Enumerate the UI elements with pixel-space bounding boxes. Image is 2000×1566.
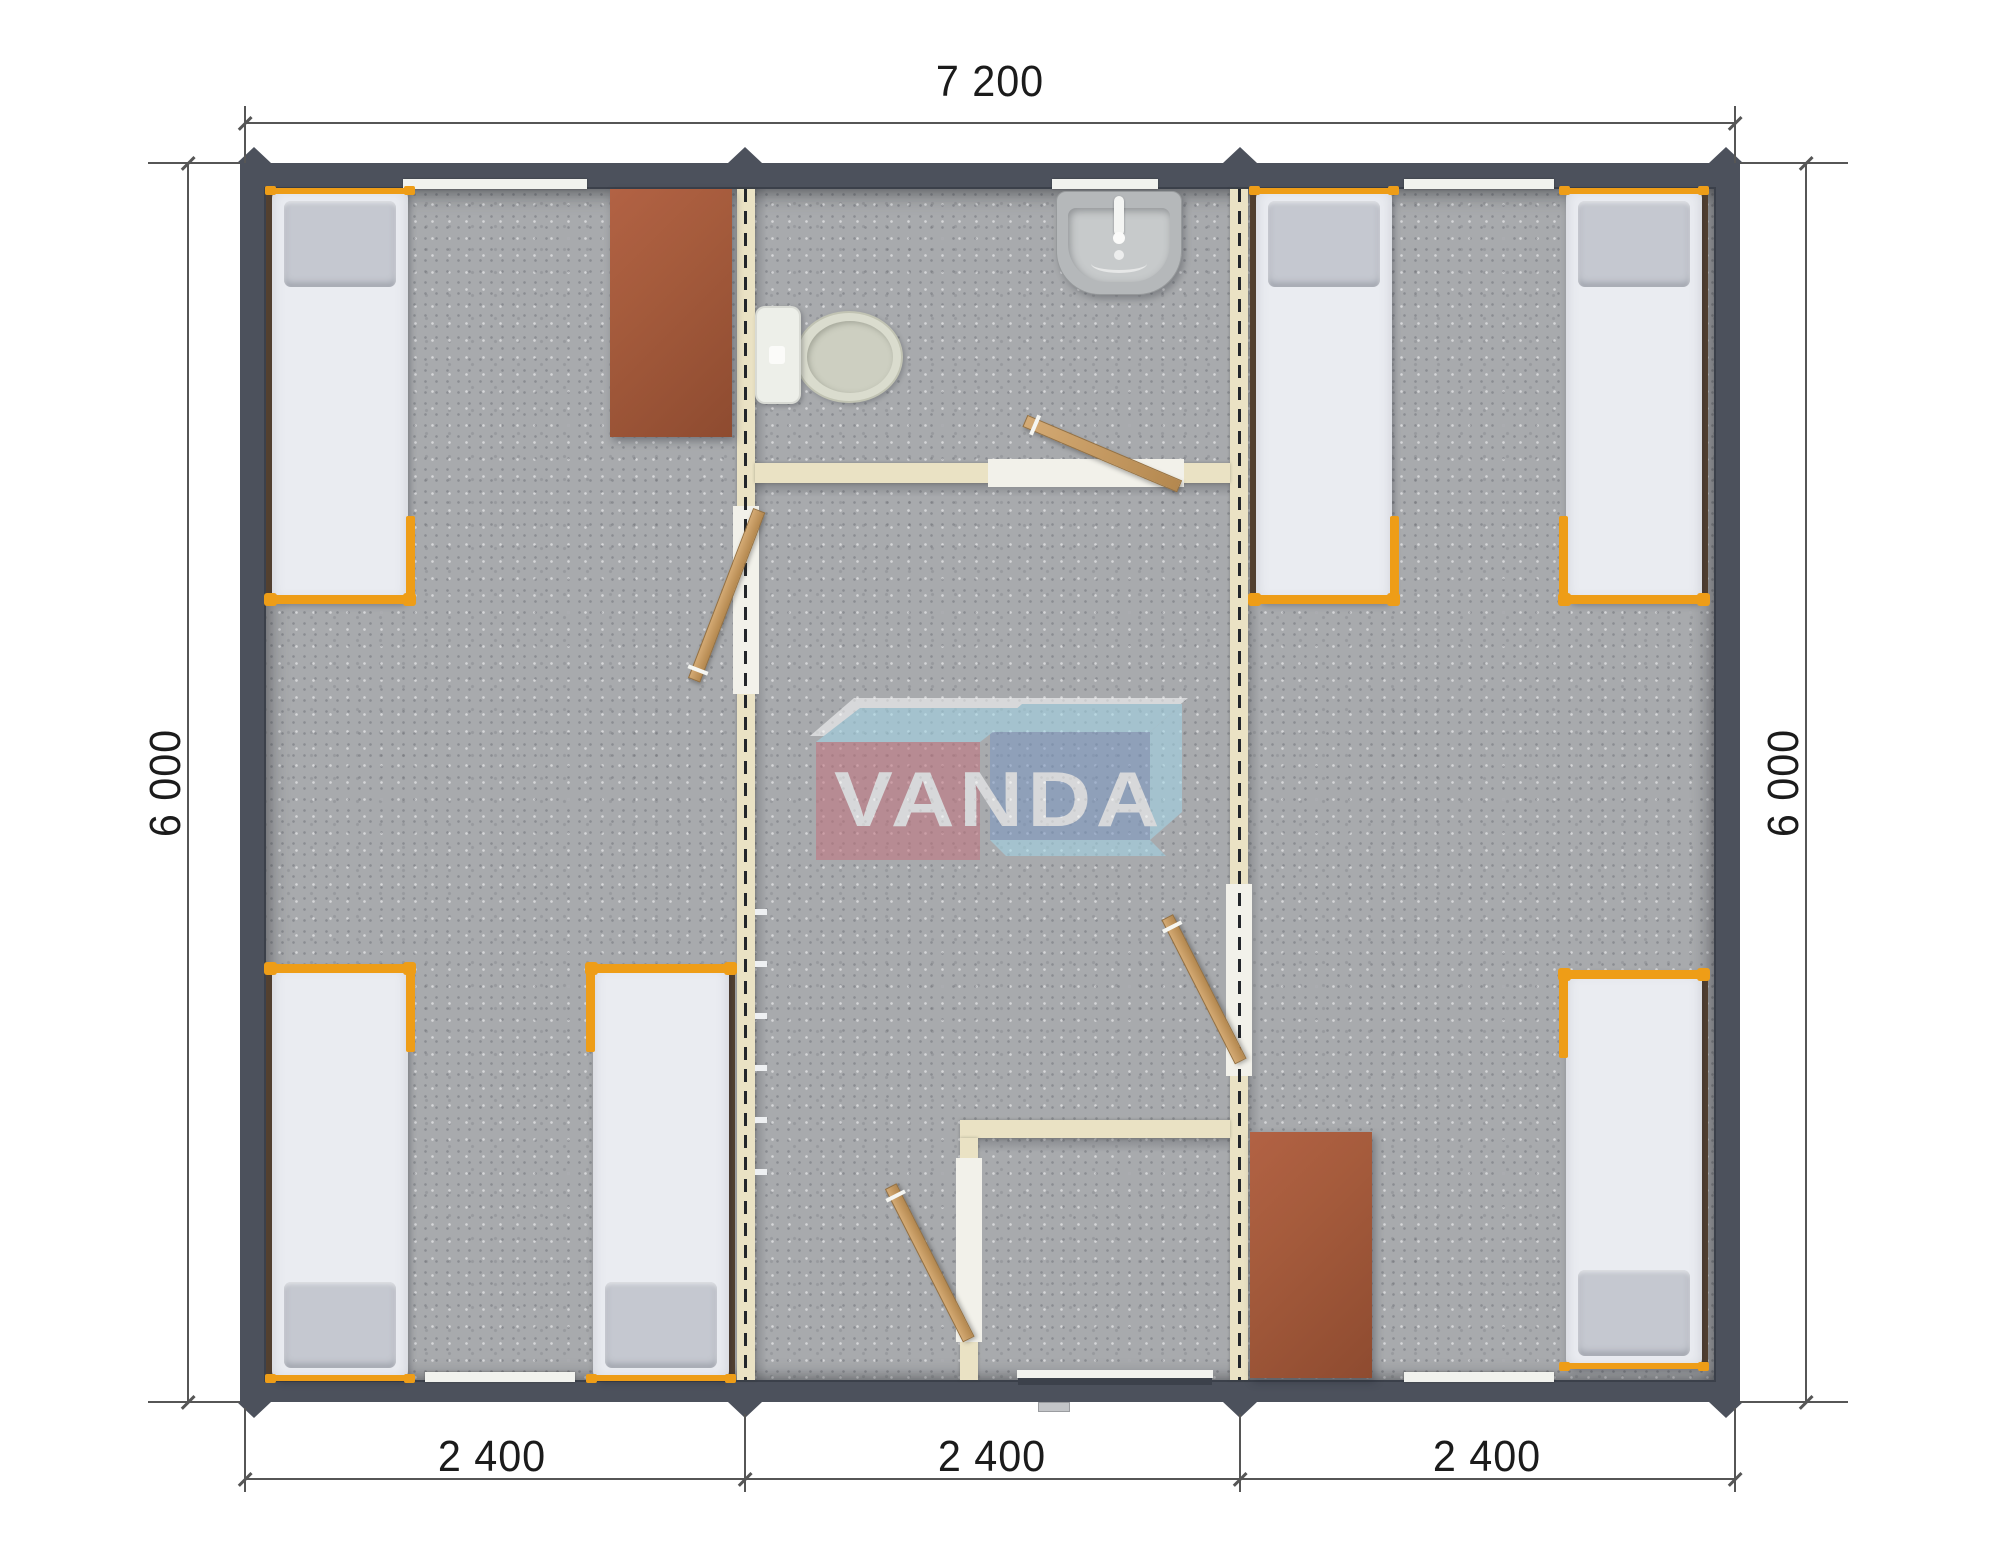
door-handle xyxy=(687,664,708,675)
roof-ridge-marker xyxy=(728,147,762,163)
bed-post xyxy=(586,1374,597,1383)
wall-hook xyxy=(755,909,767,915)
door-handle xyxy=(1029,415,1041,436)
bed-post xyxy=(1559,1362,1570,1371)
bed-post xyxy=(1698,1362,1709,1371)
wall-hook xyxy=(755,1117,767,1123)
bed-foot-frame xyxy=(1564,595,1704,604)
shower-room-top-wall xyxy=(960,1120,1230,1138)
bed-post xyxy=(1698,186,1709,195)
bed-side-frame xyxy=(1390,516,1399,604)
bed-head-frame xyxy=(1254,188,1394,194)
vanda-watermark: VANDA xyxy=(810,698,1188,870)
wall-hook xyxy=(755,961,767,967)
window xyxy=(425,1372,575,1382)
bed-post xyxy=(724,962,737,975)
dimension-label-top: 7 200 xyxy=(896,57,1084,107)
window xyxy=(1404,179,1554,189)
bed-side-frame xyxy=(406,964,415,1052)
bed-head-frame xyxy=(270,188,410,194)
bed-post xyxy=(404,1374,415,1383)
bed-post xyxy=(264,593,277,606)
bed-top-left xyxy=(268,189,412,602)
bed-post xyxy=(725,1374,736,1383)
bed-head-frame xyxy=(1564,1363,1704,1369)
window xyxy=(403,179,587,189)
roof-ridge-marker xyxy=(1709,1402,1743,1418)
bed-side-frame xyxy=(406,516,415,604)
logo-text: VANDA xyxy=(834,755,1164,843)
dimension-line-top xyxy=(245,122,1735,124)
toilet-tank xyxy=(755,306,801,404)
bed-foot-frame xyxy=(270,964,410,973)
bed-pillow xyxy=(1268,201,1380,287)
bed-post xyxy=(1249,186,1260,195)
bed-top-right-inner xyxy=(1252,189,1396,602)
bed-foot-frame xyxy=(270,595,410,604)
door-handle xyxy=(1162,920,1183,933)
dimension-label-bottom-2: 2 400 xyxy=(898,1432,1086,1482)
bed-post xyxy=(404,186,415,195)
roof-ridge-marker xyxy=(1223,147,1257,163)
bed-foot-frame xyxy=(591,964,731,973)
bed-head-frame xyxy=(1564,188,1704,194)
dimension-label-bottom-3: 2 400 xyxy=(1393,1432,1581,1482)
bed-post xyxy=(1558,593,1571,606)
bed-top-right-outer xyxy=(1562,189,1706,602)
entrance-threshold xyxy=(1017,1370,1213,1378)
bed-post xyxy=(403,593,416,606)
bed-head-frame xyxy=(591,1375,731,1381)
wall-hook xyxy=(755,1169,767,1175)
bed-side-frame xyxy=(1559,516,1568,604)
extension-line xyxy=(244,106,246,163)
roof-ridge-marker xyxy=(1709,147,1743,163)
door-handle xyxy=(885,1189,906,1202)
extension-line xyxy=(1740,162,1848,164)
entrance-door-slab xyxy=(1018,1378,1212,1385)
toilet-seat xyxy=(807,321,893,393)
bed-bottom-left-outer xyxy=(268,966,412,1380)
window xyxy=(1404,1372,1554,1382)
dimension-label-bottom-1: 2 400 xyxy=(398,1432,586,1482)
bed-post xyxy=(1387,593,1400,606)
bed-post xyxy=(1559,186,1570,195)
wall-hook xyxy=(755,1065,767,1071)
wall-shadow xyxy=(978,1138,1230,1152)
bed-post xyxy=(1248,593,1261,606)
bed-post xyxy=(1558,968,1571,981)
bed-pillow xyxy=(1578,201,1690,287)
bed-post xyxy=(1697,593,1710,606)
faucet xyxy=(1114,196,1124,236)
desk-right-room xyxy=(1250,1132,1372,1378)
floor-plan-canvas: VANDA xyxy=(0,0,2000,1566)
bed-pillow xyxy=(1578,1270,1690,1356)
roof-ridge-marker xyxy=(237,147,271,163)
bed-post xyxy=(264,962,277,975)
bed-post xyxy=(265,186,276,195)
dimension-label-right: 6 000 xyxy=(1759,689,1809,877)
bed-foot-frame xyxy=(1564,970,1704,979)
bed-post xyxy=(403,962,416,975)
bed-post xyxy=(585,962,598,975)
extension-line xyxy=(148,162,240,164)
bed-pillow xyxy=(284,1282,396,1368)
bed-head-frame xyxy=(270,1375,410,1381)
extension-line xyxy=(1740,1401,1848,1403)
dimension-label-left: 6 000 xyxy=(141,689,191,877)
faucet-head xyxy=(1113,232,1125,244)
roof-ridge-marker xyxy=(237,1402,271,1418)
wall-hook xyxy=(755,1013,767,1019)
bed-bottom-right xyxy=(1562,972,1706,1368)
extension-line xyxy=(1734,106,1736,163)
extension-line xyxy=(148,1401,240,1403)
bed-bottom-left-inner xyxy=(589,966,733,1380)
bed-pillow xyxy=(605,1282,717,1368)
bed-pillow xyxy=(284,201,396,287)
module-joint-line xyxy=(1238,189,1241,1380)
module-joint-line xyxy=(744,189,747,1380)
bed-post xyxy=(1388,186,1399,195)
window xyxy=(1052,179,1158,189)
toilet-flush-button xyxy=(769,346,785,364)
bed-post xyxy=(265,1374,276,1383)
bed-side-frame xyxy=(586,964,595,1052)
bed-side-frame xyxy=(1559,970,1568,1058)
sink xyxy=(1056,191,1182,295)
bed-foot-frame xyxy=(1254,595,1394,604)
desk-left-room xyxy=(610,189,732,437)
toilet-bowl xyxy=(795,311,903,403)
bed-post xyxy=(1697,968,1710,981)
entrance-step xyxy=(1038,1402,1070,1412)
sink-overflow-line xyxy=(1091,254,1147,273)
